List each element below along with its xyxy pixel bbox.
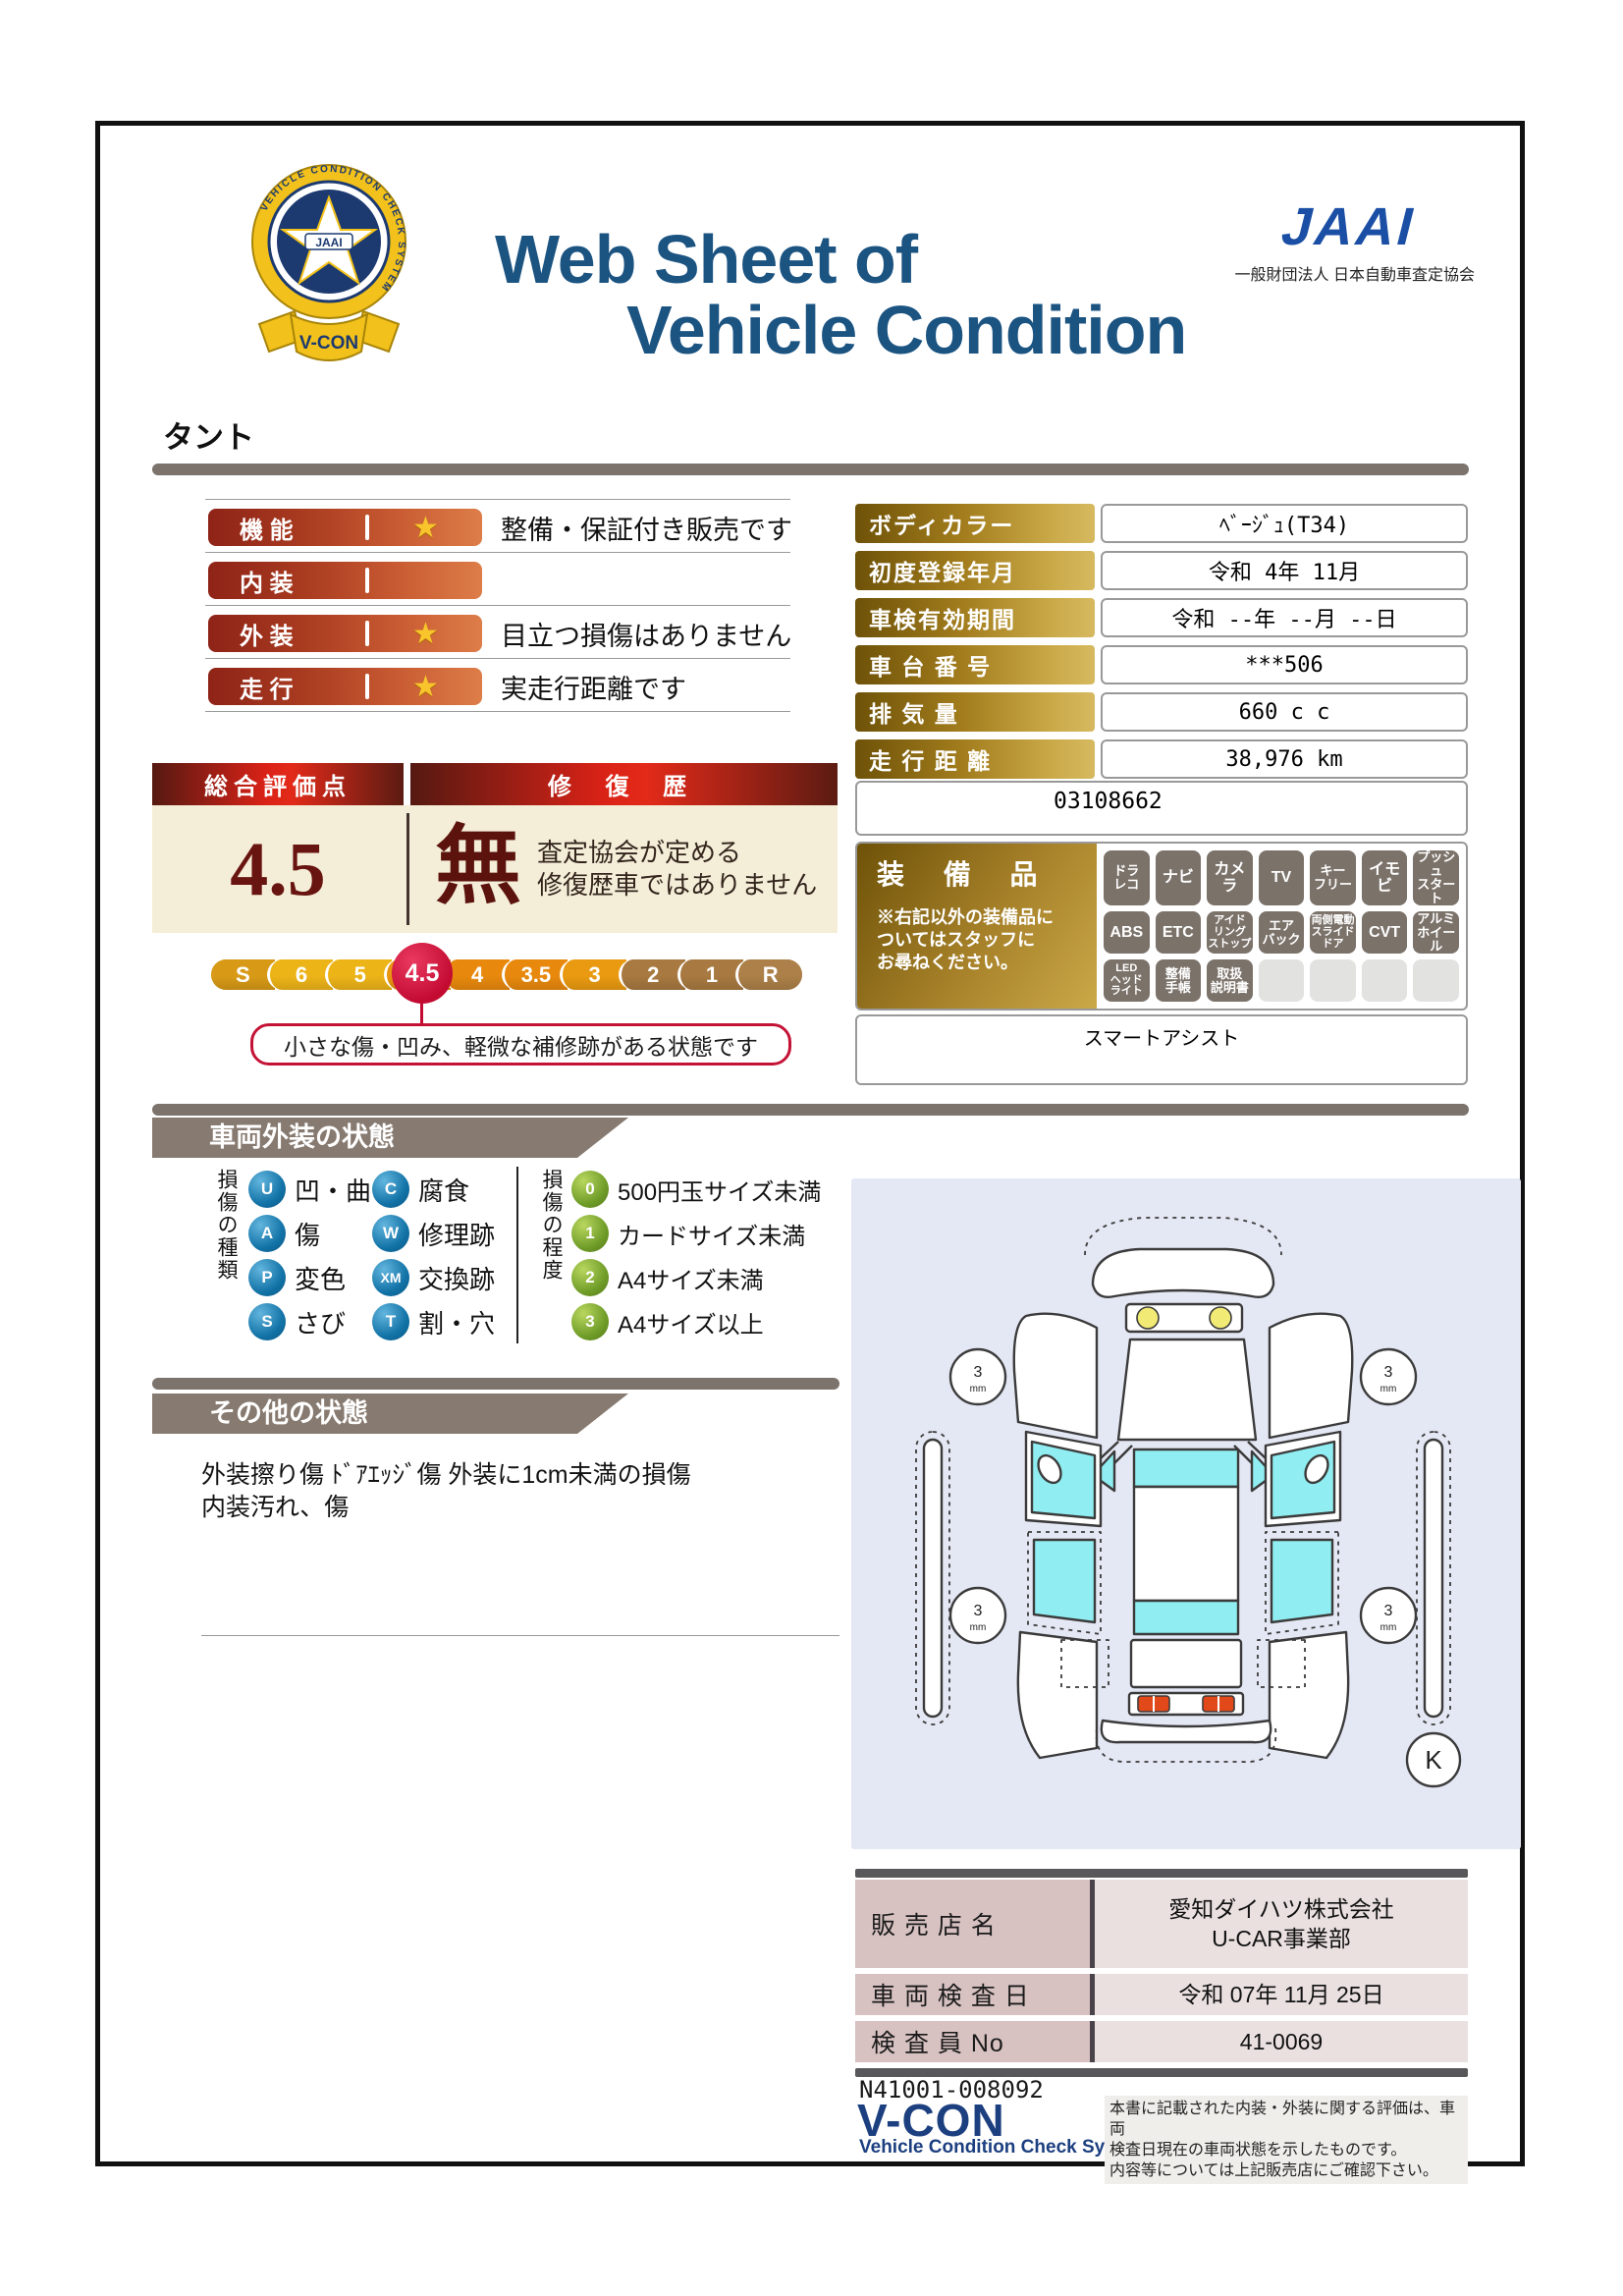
damage-degree-badge: 3: [571, 1303, 609, 1340]
rating-separator: [205, 658, 790, 659]
spec-label: 走 行 距 離: [855, 739, 1095, 779]
spec-label: 車検有効期間: [855, 598, 1095, 637]
damage-kind-item: Sさび: [248, 1302, 346, 1341]
grade-scale-segment: 3: [560, 959, 626, 990]
rating-separator: [205, 499, 790, 500]
equipment-badge: LED ヘッド ライト: [1104, 959, 1150, 1002]
equipment-badge-empty: [1310, 959, 1356, 1002]
damage-kind-item: C腐食: [372, 1170, 469, 1209]
grade-scale-track: S6543.5321R: [211, 959, 802, 990]
repair-history-header: 修 復 歴: [410, 763, 838, 805]
dealer-row-label: 販 売 店 名: [855, 1880, 1095, 1968]
equipment-badge: キー フリー: [1310, 850, 1356, 905]
equipment-badge: 取扱 説明書: [1207, 959, 1253, 1002]
grade-scale-segment: 3.5: [502, 959, 568, 990]
grade-scale-segment: 5: [325, 959, 392, 990]
dealer-row: 車 両 検 査 日 令和 07年 11月 25日: [855, 1974, 1468, 2015]
equipment-footer-note: スマートアシスト: [855, 1014, 1468, 1085]
equipment-badge: イモビ: [1362, 850, 1408, 905]
headlight: [1137, 1307, 1159, 1329]
equipment-badge-empty: [1259, 959, 1305, 1002]
rating-separator: [205, 711, 790, 712]
front-bumper: [1093, 1249, 1273, 1297]
jaai-logo: JAAI: [1275, 196, 1423, 257]
damage-kind-badge: P: [248, 1259, 286, 1296]
rating-separator: [205, 552, 790, 553]
damage-kind-badge: A: [248, 1215, 286, 1252]
grade-balloon-stem: [420, 1003, 423, 1025]
damage-degree-badge: 0: [571, 1171, 609, 1208]
grade-scale-segment: 1: [677, 959, 744, 990]
front-fender: [1014, 1314, 1097, 1438]
sheet-frame: VEHICLE CONDITION CHECK SYSTEM JAAI V-CO…: [95, 121, 1525, 2166]
grade-scale-segment: R: [735, 959, 802, 990]
svg-text:mm: mm: [970, 1384, 987, 1394]
star-icon: ★: [369, 511, 482, 545]
rating-desc: 実走行距離です: [501, 668, 686, 705]
side-sill: [924, 1440, 942, 1717]
equipment-badge: プッシュ スタート: [1413, 850, 1459, 905]
equipment-badge: ABS: [1104, 911, 1150, 954]
grade-scale-segment: S: [211, 959, 275, 990]
damage-kind-header: 損傷の種類: [211, 1169, 241, 1350]
corner-mark: K: [1425, 1745, 1442, 1775]
spec-label: 初度登録年月: [855, 551, 1095, 590]
spec-value: 660 c c: [1101, 692, 1468, 732]
spec-label: ボディカラー: [855, 504, 1095, 543]
dealer-row: 検 査 員 No 41-0069: [855, 2021, 1468, 2062]
equipment-badge: ドラ レコ: [1104, 850, 1150, 905]
equipment-title: 装 備 品: [877, 853, 1097, 893]
rear-door-window: [1034, 1540, 1095, 1622]
roof: [1134, 1487, 1238, 1601]
spec-extra-number: 03108662: [855, 781, 1468, 836]
other-section-underline: [201, 1635, 839, 1636]
rating-row-exterior: 外 装★: [208, 615, 482, 652]
rear-window: [1134, 1601, 1238, 1634]
rating-separator: [205, 605, 790, 606]
equipment-grid: ドラ レコナビカメラTVキー フリーイモビプッシュ スタートABSETCアイド …: [1097, 844, 1466, 1009]
tread-depth: 3: [1384, 1603, 1393, 1619]
damage-kind-item: T割・穴: [372, 1302, 495, 1341]
star-icon: ★: [369, 617, 482, 651]
damage-degree-badge: 1: [571, 1215, 609, 1252]
dealer-table-top-bar: [855, 1869, 1468, 1878]
equipment-badge: アルミ ホイール: [1413, 911, 1459, 954]
overall-score-body: 4.5 無 査定協会が定める 修復歴車ではありません: [152, 805, 838, 933]
tread-depth: 3: [974, 1603, 983, 1619]
damage-degree-item: 2A4サイズ未満: [571, 1258, 764, 1297]
dealer-row-label: 検 査 員 No: [855, 2021, 1095, 2062]
disclaimer-text: 本書に記載された内装・外装に関する評価は、車両 検査日現在の車両状態を示したもの…: [1105, 2096, 1468, 2184]
windshield: [1118, 1339, 1256, 1440]
section-header-exterior: 車両外装の状態: [152, 1118, 628, 1158]
rear-fender: [1018, 1632, 1097, 1758]
rating-label: 内 装: [208, 564, 359, 598]
damage-kind-item: W修理跡: [372, 1214, 495, 1253]
damage-degree-header: 損傷の程度: [536, 1169, 566, 1350]
damage-degree-item: 1カードサイズ未満: [571, 1214, 805, 1253]
spec-value: 令和 --年 --月 --日: [1101, 598, 1468, 637]
equipment-badge: エア バック: [1259, 911, 1305, 954]
grade-scale-segment: 6: [267, 959, 334, 990]
overall-body-divider: [406, 813, 409, 925]
rating-desc: 整備・保証付き販売です: [501, 509, 792, 546]
equipment-badge-empty: [1362, 959, 1408, 1002]
damage-kind-item: P変色: [248, 1258, 346, 1297]
equipment-badge: アイド リング ストップ: [1207, 911, 1253, 954]
equipment-badge: ETC: [1156, 911, 1202, 954]
other-condition-text: 外装擦り傷 ﾄﾞｱｴｯｼﾞ傷 外装に1cm未満の損傷 内装汚れ、傷: [201, 1459, 830, 1524]
dealer-row-value: 愛知ダイハツ株式会社 U-CAR事業部: [1095, 1880, 1468, 1968]
star-icon: ★: [369, 670, 482, 704]
jaai-association-name: 一般財団法人 日本自動車査定協会: [1200, 261, 1475, 285]
sheet-title-line2: Vehicle Condition: [626, 291, 1186, 369]
legend-divider: [516, 1167, 518, 1343]
svg-text:mm: mm: [1380, 1384, 1397, 1394]
rating-desc: 目立つ損傷はありません: [501, 615, 791, 652]
divider-bar-exterior: [152, 1104, 1469, 1116]
spec-label: 車 台 番 号: [855, 645, 1095, 684]
damage-kind-badge: XM: [372, 1259, 409, 1296]
dealer-row-value: 41-0069: [1095, 2021, 1468, 2062]
spec-label: 排 気 量: [855, 692, 1095, 732]
grade-current-balloon: 4.5: [392, 943, 453, 1004]
equipment-badge: TV: [1259, 850, 1305, 905]
svg-text:mm: mm: [970, 1622, 987, 1633]
tread-depth: 3: [1384, 1364, 1393, 1381]
emblem-ribbon-text: V-CON: [299, 333, 358, 354]
front-door-window: [1032, 1442, 1095, 1518]
grade-note-bubble: 小さな傷・凹み、軽微な補修跡がある状態です: [250, 1023, 791, 1066]
roof-front-window: [1134, 1449, 1238, 1487]
equipment-badge: カメラ: [1207, 850, 1253, 905]
spec-value: 令和 4年 11月: [1101, 551, 1468, 590]
repair-history-value: 無: [435, 809, 521, 927]
damage-kind-badge: T: [372, 1303, 409, 1340]
equipment-badge: 整備 手帳: [1156, 959, 1202, 1002]
damage-kind-item: U凹・曲: [248, 1170, 371, 1209]
car-damage-diagram: 3 mm 3 mm 3 mm 3 mm K: [851, 1178, 1521, 1849]
damage-degree-item: 3A4サイズ以上: [571, 1302, 764, 1341]
rating-row-function: 機 能★: [208, 509, 482, 546]
rating-row-mileage: 走 行★: [208, 668, 482, 705]
dealer-row-label: 車 両 検 査 日: [855, 1974, 1095, 2015]
damage-kind-badge: W: [372, 1215, 409, 1252]
svg-text:mm: mm: [1380, 1622, 1397, 1633]
equipment-badge: ナビ: [1156, 850, 1202, 905]
grade-scale-segment: 2: [619, 959, 685, 990]
emblem-center-text: JAAI: [315, 236, 342, 249]
rating-label: 機 能: [208, 511, 359, 545]
damage-degree-item: 0500円玉サイズ未満: [571, 1170, 821, 1209]
equipment-box: 装 備 品 ※右記以外の装備品に ついてはスタッフに お尋ねください。 ドラ レ…: [855, 842, 1468, 1011]
divider-bar-other: [152, 1378, 839, 1390]
spec-value: ﾍﾞｰｼﾞｭ(T34): [1101, 504, 1468, 543]
spec-value: ***506: [1101, 645, 1468, 684]
vcon-emblem: VEHICLE CONDITION CHECK SYSTEM JAAI V-CO…: [245, 151, 412, 377]
rating-divider: [365, 568, 369, 593]
tread-depth: 3: [974, 1364, 983, 1381]
equipment-badge: CVT: [1362, 911, 1408, 954]
damage-kind-badge: U: [248, 1171, 286, 1208]
section-header-other: その他の状態: [152, 1394, 628, 1434]
dealer-row-value: 令和 07年 11月 25日: [1095, 1974, 1468, 2015]
sheet-title-line1: Web Sheet of: [495, 220, 917, 299]
headlight: [1210, 1307, 1231, 1329]
rating-label: 外 装: [208, 617, 359, 651]
damage-kind-item: XM交換跡: [372, 1258, 495, 1297]
rating-row-interior: 内 装★: [208, 562, 482, 599]
vehicle-name: タント: [163, 412, 254, 457]
overall-score-value: 4.5: [152, 811, 404, 927]
repair-history-note: 査定協会が定める 修復歴車ではありません: [537, 837, 817, 902]
equipment-note: ※右記以外の装備品に ついてはスタッフに お尋ねください。: [877, 906, 1097, 974]
damage-kind-item: A傷: [248, 1214, 320, 1253]
spec-value: 38,976 km: [1101, 739, 1468, 779]
damage-kind-badge: C: [372, 1171, 409, 1208]
damage-degree-badge: 2: [571, 1259, 609, 1296]
equipment-badge: 両側電動 スライド ドア: [1310, 911, 1356, 954]
equipment-badge-empty: [1413, 959, 1459, 1002]
equipment-gold-panel: 装 備 品 ※右記以外の装備品に ついてはスタッフに お尋ねください。: [857, 844, 1097, 1009]
damage-kind-badge: S: [248, 1303, 286, 1340]
rear-gate: [1131, 1640, 1241, 1687]
overall-score-header: 総合評価点: [152, 763, 404, 805]
rating-label: 走 行: [208, 670, 359, 704]
divider-bar-top: [152, 464, 1469, 475]
rear-bumper: [1102, 1721, 1271, 1742]
dealer-row: 販 売 店 名 愛知ダイハツ株式会社 U-CAR事業部: [855, 1880, 1468, 1968]
